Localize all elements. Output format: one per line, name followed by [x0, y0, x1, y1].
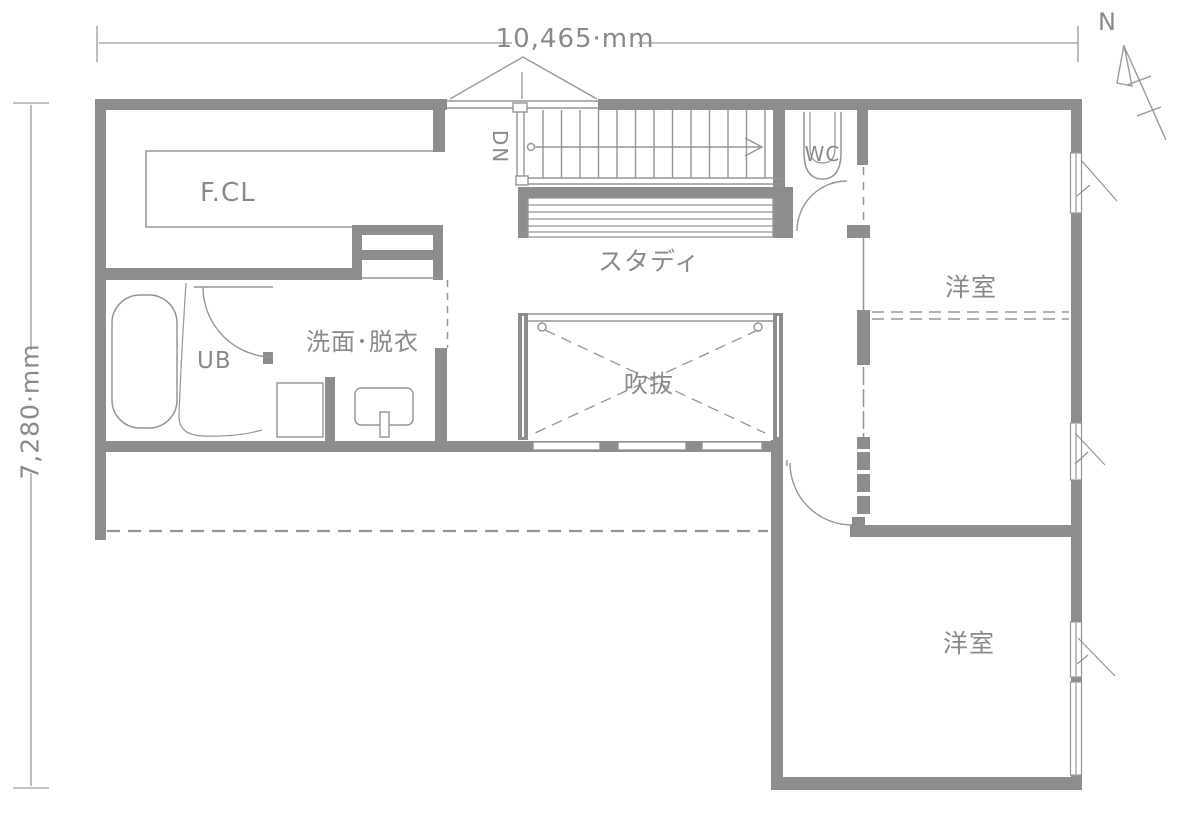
label-unit-bath: UB [197, 348, 232, 374]
dimension-height-label: 7,280·mm [16, 292, 45, 532]
label-washroom: 洗面･脱衣 [306, 322, 419, 357]
vanity-icon [355, 388, 413, 437]
label-stairs-down: DN [488, 125, 512, 169]
north-arrow-icon [1117, 45, 1166, 140]
bathtub-icon [112, 283, 262, 436]
label-family-closet: F.CL [200, 178, 256, 208]
bath-door [194, 287, 273, 357]
washer-icon [277, 383, 323, 437]
partition-lines [107, 57, 1069, 531]
label-study: スタディ [598, 242, 700, 278]
label-toilet: WC [800, 142, 845, 166]
dimension-width-label: 10,465·mm [455, 24, 695, 54]
label-bedroom-lower: 洋室 [933, 624, 1005, 660]
study-desk [528, 198, 773, 237]
label-bedroom-upper: 洋室 [935, 268, 1007, 304]
label-north: N [1098, 8, 1117, 36]
staircase [513, 103, 783, 185]
label-void: 吹抜 [624, 364, 674, 399]
floor-plan-canvas: 10,465·mm 7,280·mm F.CL DN WC スタディ 洗面･脱衣… [0, 0, 1200, 834]
bedroom-door [787, 460, 852, 525]
dimension-lines [13, 26, 1078, 788]
plan-linework [0, 0, 1200, 834]
wc-door [797, 181, 847, 231]
